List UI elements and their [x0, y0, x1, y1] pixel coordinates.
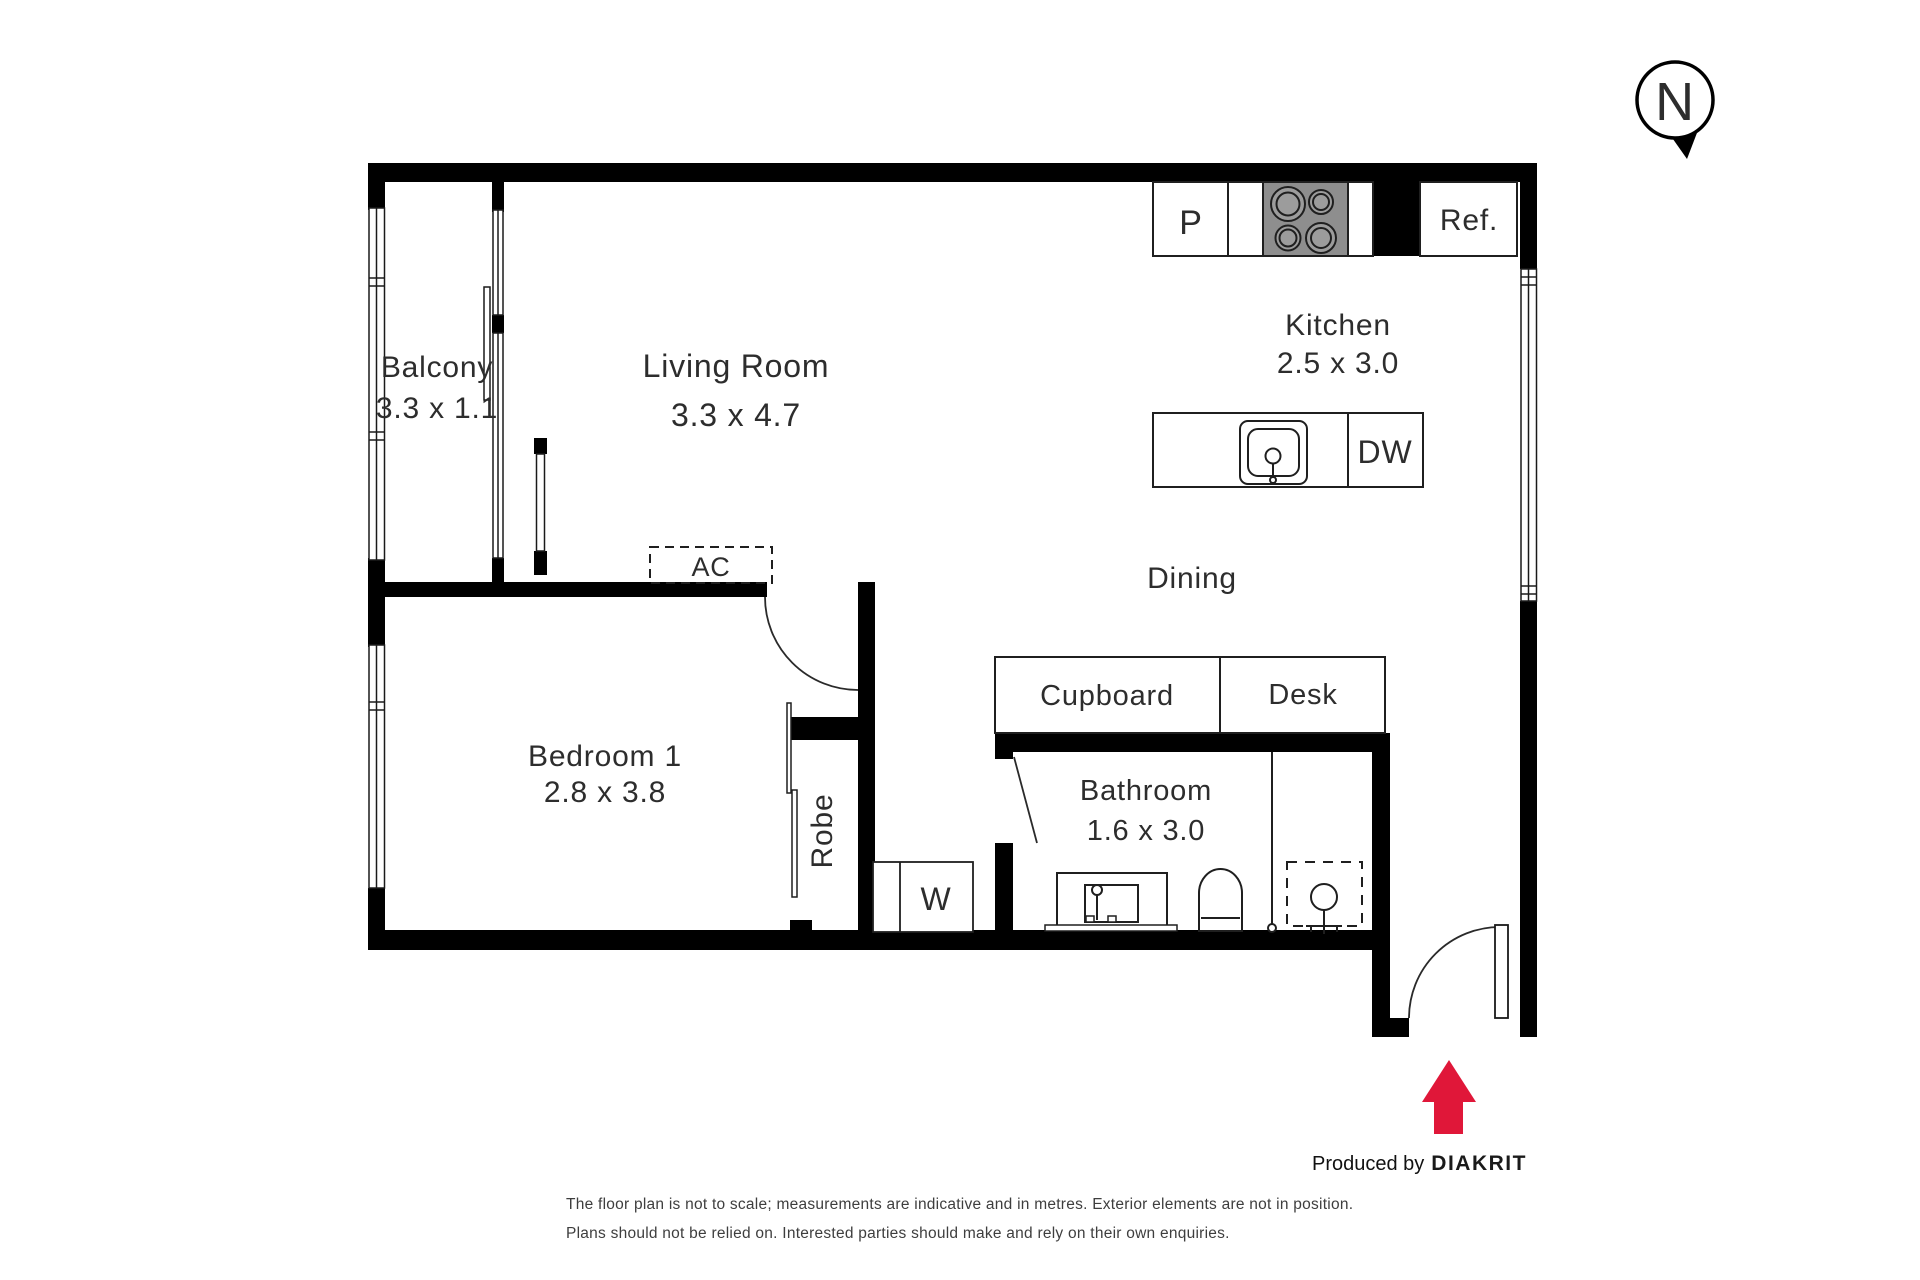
wall-segment — [790, 717, 875, 740]
wall-segment — [1373, 163, 1420, 256]
desk-label: Desk — [1268, 679, 1337, 711]
disclaimer-line-1: The floor plan is not to scale; measurem… — [566, 1190, 1353, 1219]
shower — [1287, 862, 1362, 934]
balcony-slider-glazing — [484, 210, 545, 558]
bedroom1-dims: 2.8 x 3.8 — [544, 776, 666, 809]
wall-segment — [368, 163, 385, 210]
entry-arrow-icon — [1422, 1060, 1476, 1134]
wall-segment — [492, 558, 504, 597]
right-window — [1521, 269, 1537, 601]
entry-arrow-stem — [1434, 1100, 1463, 1134]
balcony-window — [369, 208, 385, 560]
pantry-label: P — [1179, 204, 1202, 242]
floor-plan: N Balcony 3.3 x 1.1 Living Room 3.3 x 4.… — [0, 0, 1920, 1280]
wall-segment — [534, 438, 547, 454]
produced-by-text: Produced by — [1312, 1153, 1424, 1176]
credit-line: Produced by DIAKRIT — [1312, 1152, 1527, 1176]
wall-segment — [368, 558, 385, 647]
north-compass: N — [1637, 62, 1713, 159]
bathroom-door-leaf — [1014, 757, 1037, 843]
wall-segment — [385, 582, 767, 597]
living-room-label: Living Room — [643, 348, 830, 384]
vanity — [1045, 873, 1177, 931]
entry-arrow-head — [1422, 1060, 1476, 1102]
wall-segment — [1372, 733, 1390, 1037]
washer-label: W — [920, 881, 951, 917]
compass-north-label: N — [1655, 72, 1695, 132]
wall-segment — [1520, 601, 1537, 1037]
refrigerator-label: Ref. — [1440, 204, 1498, 237]
disclaimer: The floor plan is not to scale; measurem… — [566, 1190, 1353, 1248]
bedroom-window — [369, 645, 385, 888]
wall-segment — [368, 163, 1537, 182]
wall-segment — [534, 551, 547, 575]
balcony-label: Balcony — [381, 351, 493, 384]
entry-door-arc — [1409, 927, 1500, 1018]
kitchen-label: Kitchen — [1285, 309, 1391, 342]
diakrit-brand: DIAKRIT — [1431, 1152, 1527, 1176]
bathroom-label: Bathroom — [1080, 775, 1212, 807]
disclaimer-line-2: Plans should not be relied on. Intereste… — [566, 1219, 1353, 1248]
shower-screen — [1268, 752, 1276, 932]
bathroom-dims: 1.6 x 3.0 — [1087, 815, 1205, 847]
wall-segment — [492, 182, 504, 212]
wall-segment — [368, 930, 1390, 950]
wall-segment — [995, 843, 1013, 950]
robe-label: Robe — [806, 794, 839, 869]
entry-door-leaf — [1495, 925, 1508, 1018]
wall-segment — [995, 733, 1013, 759]
kitchen-dims: 2.5 x 3.0 — [1277, 347, 1399, 380]
wall-segment — [492, 315, 504, 333]
ac-label: AC — [691, 552, 730, 582]
sink — [1240, 421, 1307, 484]
cupboard-label: Cupboard — [1040, 680, 1174, 712]
dining-label: Dining — [1147, 562, 1237, 595]
wall-segment — [790, 920, 812, 950]
wall-segment — [1520, 163, 1537, 269]
wall-segment — [995, 733, 1390, 752]
living-room-dims: 3.3 x 4.7 — [671, 397, 801, 433]
dishwasher-label: DW — [1358, 434, 1413, 470]
toilet — [1199, 869, 1242, 931]
floor-plan-page: N Balcony 3.3 x 1.1 Living Room 3.3 x 4.… — [0, 0, 1920, 1280]
bedroom-door-arc — [765, 597, 858, 690]
bedroom1-label: Bedroom 1 — [528, 740, 682, 773]
balcony-dims: 3.3 x 1.1 — [376, 392, 498, 425]
